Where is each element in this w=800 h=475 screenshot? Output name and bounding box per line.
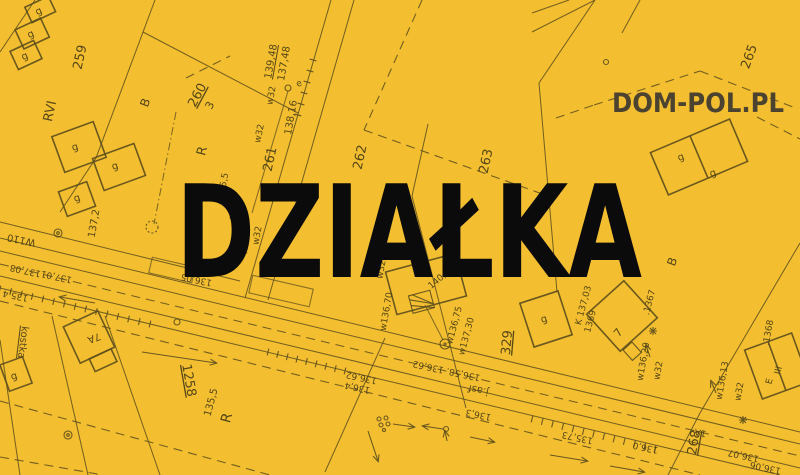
hatch-tick <box>128 316 130 323</box>
hatch-tick <box>149 321 151 328</box>
plot-placeholder-image: ggg259RVIB2603Rggg137,2W110137,08137,011… <box>0 0 800 475</box>
map-label: g <box>34 5 44 18</box>
hatch-tick <box>85 306 87 313</box>
map-label: 135,4 <box>2 287 30 302</box>
hatch-tick <box>117 313 119 320</box>
map-label: 137,2 <box>87 209 103 239</box>
map-label: g <box>70 141 80 154</box>
cadastral-map: ggg259RVIB2603Rggg137,2W110137,08137,011… <box>0 0 800 475</box>
map-label: .1368 <box>762 319 776 346</box>
map-label: w32 <box>253 123 267 143</box>
map-label: E <box>765 377 776 385</box>
map-label: 137,01 <box>40 268 73 284</box>
map-label: 136,58. 136,62 <box>412 358 481 382</box>
map-label: w32 <box>652 361 665 381</box>
hatch-tick <box>0 286 1 293</box>
map-label: W110 <box>6 231 37 248</box>
hatch-tick <box>42 296 44 303</box>
site-watermark: DOM-POL.PL <box>612 88 784 119</box>
map-label: III <box>773 365 785 375</box>
map-label: g <box>9 370 19 383</box>
map-label: w136,20 <box>636 341 653 381</box>
map-label: e <box>295 78 304 89</box>
hatch-tick <box>53 298 55 305</box>
map-label: 136,06 <box>749 459 782 475</box>
map-label: 7A <box>86 330 102 345</box>
map-label: 268 <box>685 429 704 456</box>
hatch-tick <box>541 418 543 425</box>
map-label: kostka <box>15 326 30 360</box>
hatch-tick <box>96 308 98 315</box>
map-label: w32 <box>265 86 278 106</box>
map-label: g <box>539 313 549 326</box>
map-label: R <box>194 145 211 158</box>
map-label: B <box>664 255 680 268</box>
hatch-tick <box>138 318 140 325</box>
map-label: B <box>137 96 153 109</box>
map-label: j.asf <box>467 382 491 397</box>
hatch-tick <box>603 433 605 440</box>
map-label: 1258 <box>178 363 199 398</box>
map-label: 7 <box>611 326 625 340</box>
map-label: 136,3 <box>465 406 492 421</box>
map-label: 135,73 <box>561 429 594 445</box>
map-label: g <box>72 192 82 205</box>
hatch-tick <box>74 303 76 310</box>
map-label: .1367 <box>642 289 658 316</box>
map-label: 259 <box>71 44 91 71</box>
hatch-tick <box>63 301 65 308</box>
map-label: 329 <box>499 330 516 356</box>
map-label: 3 <box>203 99 218 111</box>
map-label: 135,5 <box>203 387 221 418</box>
hatch-tick <box>106 311 108 318</box>
plot-headline: DZIAŁKA <box>176 159 642 308</box>
hatch-tick <box>552 421 554 428</box>
map-label: 265 <box>738 43 761 71</box>
hatch-tick <box>531 416 533 423</box>
map-label: w136,13 <box>715 361 732 401</box>
hatch-tick <box>623 438 625 445</box>
map-label: g <box>676 151 686 164</box>
map-label: 136,0 <box>632 439 660 454</box>
map-label: g <box>26 28 36 41</box>
map-label: g <box>20 50 30 63</box>
hatch-tick <box>31 293 33 300</box>
map-label: g <box>110 160 120 173</box>
map-label: w32 <box>733 382 746 402</box>
map-label: RVI <box>41 99 60 123</box>
map-label: 137,08 <box>9 262 42 278</box>
hatch-tick <box>613 436 615 443</box>
map-label: R <box>218 411 236 425</box>
